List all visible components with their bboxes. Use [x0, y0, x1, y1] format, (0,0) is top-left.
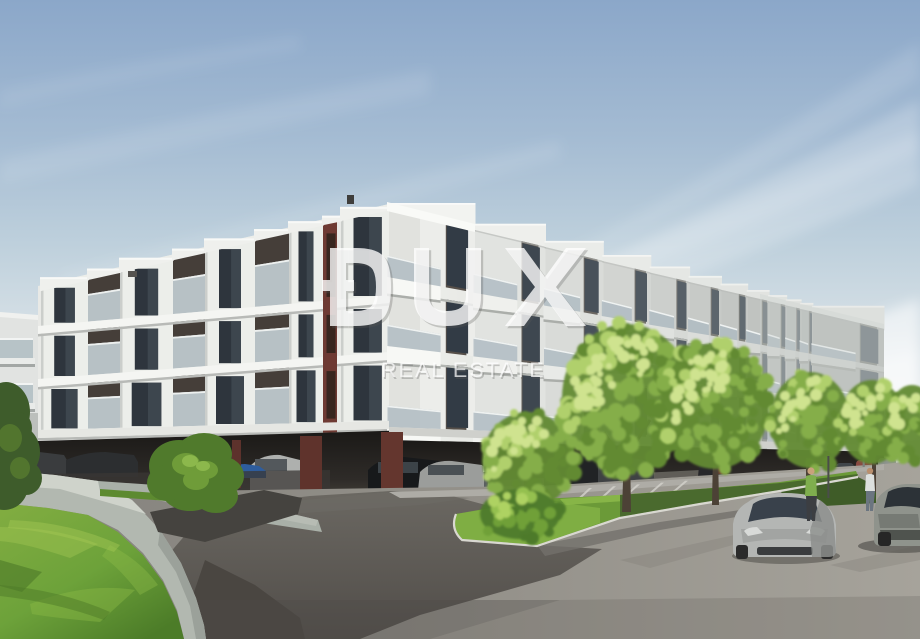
- svg-text:REAL ESTATE: REAL ESTATE: [381, 358, 546, 382]
